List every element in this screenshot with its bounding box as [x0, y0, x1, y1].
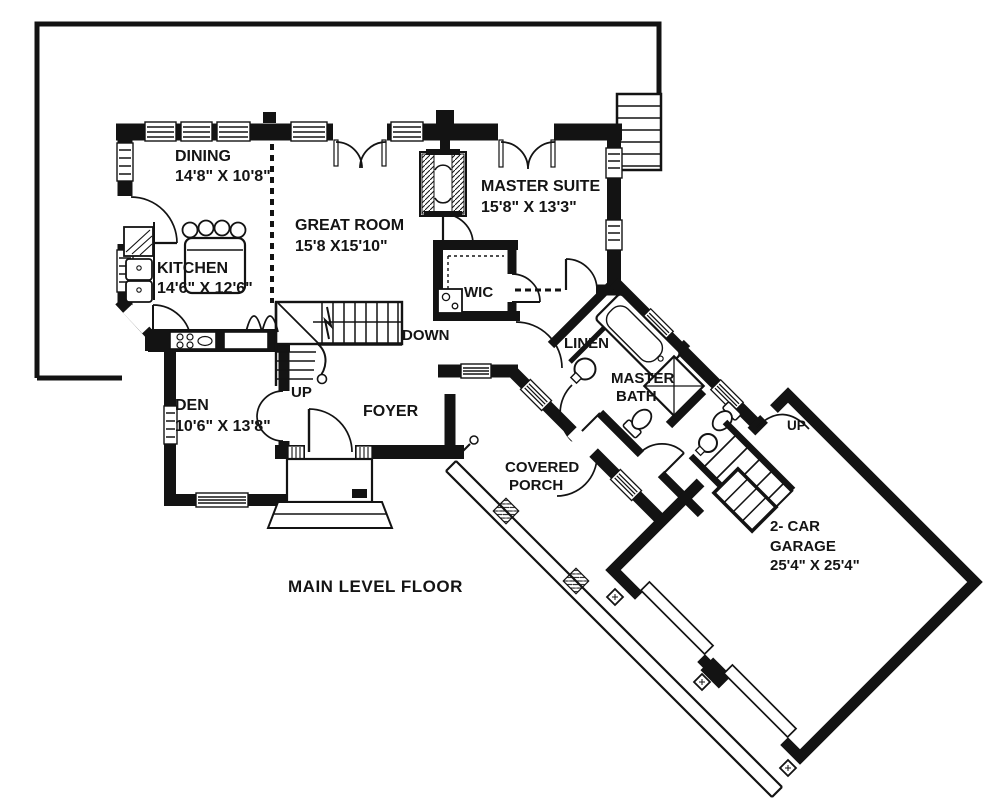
refrigerator: [124, 227, 153, 256]
deck-wall-window-1: [117, 143, 133, 181]
master-bath-label-2: BATH: [616, 388, 657, 405]
vanity-sink: [571, 359, 596, 384]
master-suite-label: MASTER SUITE: [481, 178, 600, 195]
kitchen-counter: [224, 332, 268, 349]
linen-label: LINEN: [564, 335, 609, 352]
great-room-window-2: [391, 122, 423, 141]
dining-window-1: [145, 122, 176, 141]
den-window-bottom: [196, 493, 248, 507]
main-staircase: [276, 302, 402, 386]
master-suite-french-door: [498, 121, 555, 169]
hall-window: [461, 364, 491, 378]
great-room-label: GREAT ROOM: [295, 217, 404, 234]
kitchen-label: KITCHEN: [157, 260, 228, 277]
garage-label-1: 2- CAR: [770, 518, 820, 535]
dining-label: DINING: [175, 148, 231, 165]
floor-plan-page: DINING 14'8" X 10'8" GREAT ROOM 15'8 X15…: [0, 0, 1000, 802]
range: [170, 332, 216, 349]
foyer-label: FOYER: [363, 403, 419, 420]
garage-up-label: UP: [787, 418, 806, 433]
toilet-master: [623, 405, 656, 438]
stairs-up-label: UP: [291, 384, 312, 401]
den-dims: 10'6" X 13'8": [175, 418, 271, 435]
front-door-sidelight-left: [288, 446, 304, 459]
great-room-dims: 15'8 X15'10": [295, 238, 388, 255]
covered-porch-label-2: PORCH: [509, 477, 563, 494]
master-suite-hall-door: [566, 259, 597, 290]
garage-walls: [613, 395, 975, 757]
kitchen-sink: [126, 259, 152, 302]
deck-stairs: [617, 94, 661, 170]
dining-window-3: [217, 122, 250, 141]
master-bath-label-1: MASTER: [611, 370, 675, 387]
master-suite-entry-door: [443, 214, 473, 244]
front-door-sidelight-right: [356, 446, 372, 459]
washer-dryer: [438, 289, 462, 313]
kitchen-dims: 14'6" X 12'6": [157, 280, 253, 297]
dining-dims: 14'8" X 10'8": [175, 168, 271, 185]
wic-label: WIC: [464, 284, 493, 301]
wic-door: [512, 274, 540, 302]
powder-sink: [696, 434, 717, 455]
stairs-down-label: DOWN: [402, 327, 450, 344]
garage-dims: 25'4" X 25'4": [770, 557, 860, 574]
plan-title: MAIN LEVEL FLOOR: [288, 577, 463, 596]
dining-window-2: [181, 122, 212, 141]
roof-posts: [607, 589, 796, 776]
great-room-window-1: [291, 122, 327, 141]
great-room-french-door: [333, 121, 387, 168]
wic-closet: [433, 244, 520, 321]
floor-plan-drawing: DINING 14'8" X 10'8" GREAT ROOM 15'8 X15…: [0, 0, 1000, 802]
garage-label-2: GARAGE: [770, 538, 836, 555]
master-suite-window-2: [606, 220, 622, 250]
garage-door-panels: [641, 582, 796, 737]
master-suite-window-1: [606, 148, 622, 178]
front-door: [288, 409, 372, 461]
entry-stoop: [268, 459, 392, 528]
den-label: DEN: [175, 397, 209, 414]
covered-porch-label-1: COVERED: [505, 459, 579, 476]
island-stools: [183, 221, 246, 238]
master-suite-dims: 15'8" X 13'3": [481, 199, 577, 216]
